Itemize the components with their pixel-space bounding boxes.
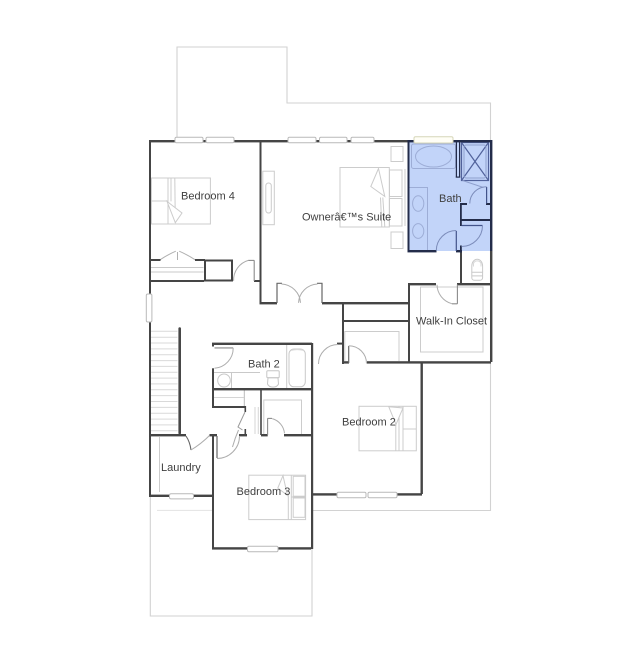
svg-text:Laundry: Laundry bbox=[161, 462, 201, 474]
svg-text:Bath: Bath bbox=[439, 193, 462, 205]
svg-text:Ownerâ€™s Suite: Ownerâ€™s Suite bbox=[302, 212, 391, 224]
svg-text:Walk-In Closet: Walk-In Closet bbox=[416, 316, 487, 328]
svg-text:Bedroom 3: Bedroom 3 bbox=[237, 486, 291, 498]
svg-text:Bedroom 2: Bedroom 2 bbox=[342, 417, 396, 429]
svg-text:Bedroom 4: Bedroom 4 bbox=[181, 191, 235, 203]
svg-text:Bath 2: Bath 2 bbox=[248, 359, 280, 371]
